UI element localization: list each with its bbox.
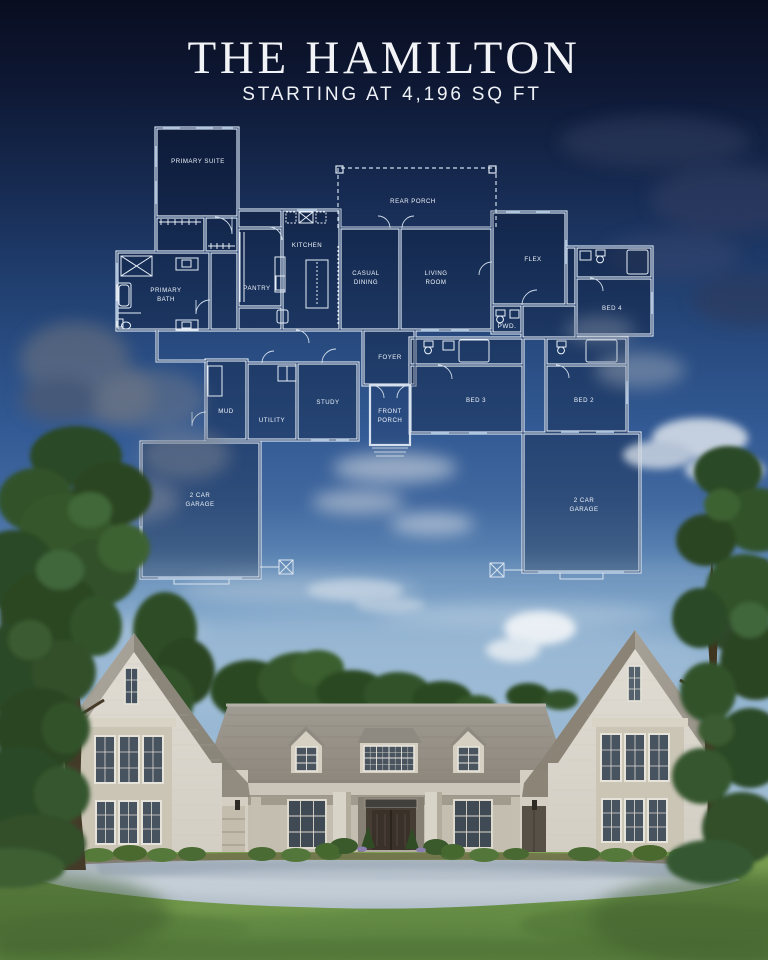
svg-text:BATH: BATH (157, 296, 175, 303)
svg-text:MUD: MUD (218, 408, 233, 415)
svg-text:2 CAR: 2 CAR (190, 492, 211, 499)
svg-text:UTILITY: UTILITY (259, 417, 285, 424)
svg-text:PORCH: PORCH (378, 417, 403, 424)
svg-text:DINING: DINING (354, 279, 378, 286)
svg-text:ROOM: ROOM (426, 279, 447, 286)
svg-text:GARAGE: GARAGE (185, 501, 214, 508)
svg-text:FLEX: FLEX (524, 256, 541, 263)
svg-text:PANTRY: PANTRY (243, 285, 270, 292)
svg-text:KITCHEN: KITCHEN (292, 242, 322, 249)
svg-text:REAR PORCH: REAR PORCH (390, 198, 436, 205)
svg-text:THE HAMILTON: THE HAMILTON (188, 32, 581, 84)
svg-text:BED 3: BED 3 (466, 397, 486, 404)
svg-text:CASUAL: CASUAL (352, 270, 379, 277)
svg-text:PRIMARY: PRIMARY (150, 287, 181, 294)
svg-text:BED 2: BED 2 (574, 397, 594, 404)
svg-text:FOYER: FOYER (378, 354, 402, 361)
svg-text:STARTING AT 4,196 SQ FT: STARTING AT 4,196 SQ FT (242, 84, 542, 105)
svg-text:2 CAR: 2 CAR (574, 497, 595, 504)
svg-text:FRONT: FRONT (378, 408, 402, 415)
svg-text:STUDY: STUDY (316, 399, 339, 406)
svg-text:PWD.: PWD. (498, 323, 517, 330)
svg-text:GARAGE: GARAGE (569, 506, 598, 513)
svg-text:BED 4: BED 4 (602, 305, 622, 312)
svg-text:PRIMARY SUITE: PRIMARY SUITE (171, 158, 225, 165)
svg-text:LIVING: LIVING (425, 270, 448, 277)
